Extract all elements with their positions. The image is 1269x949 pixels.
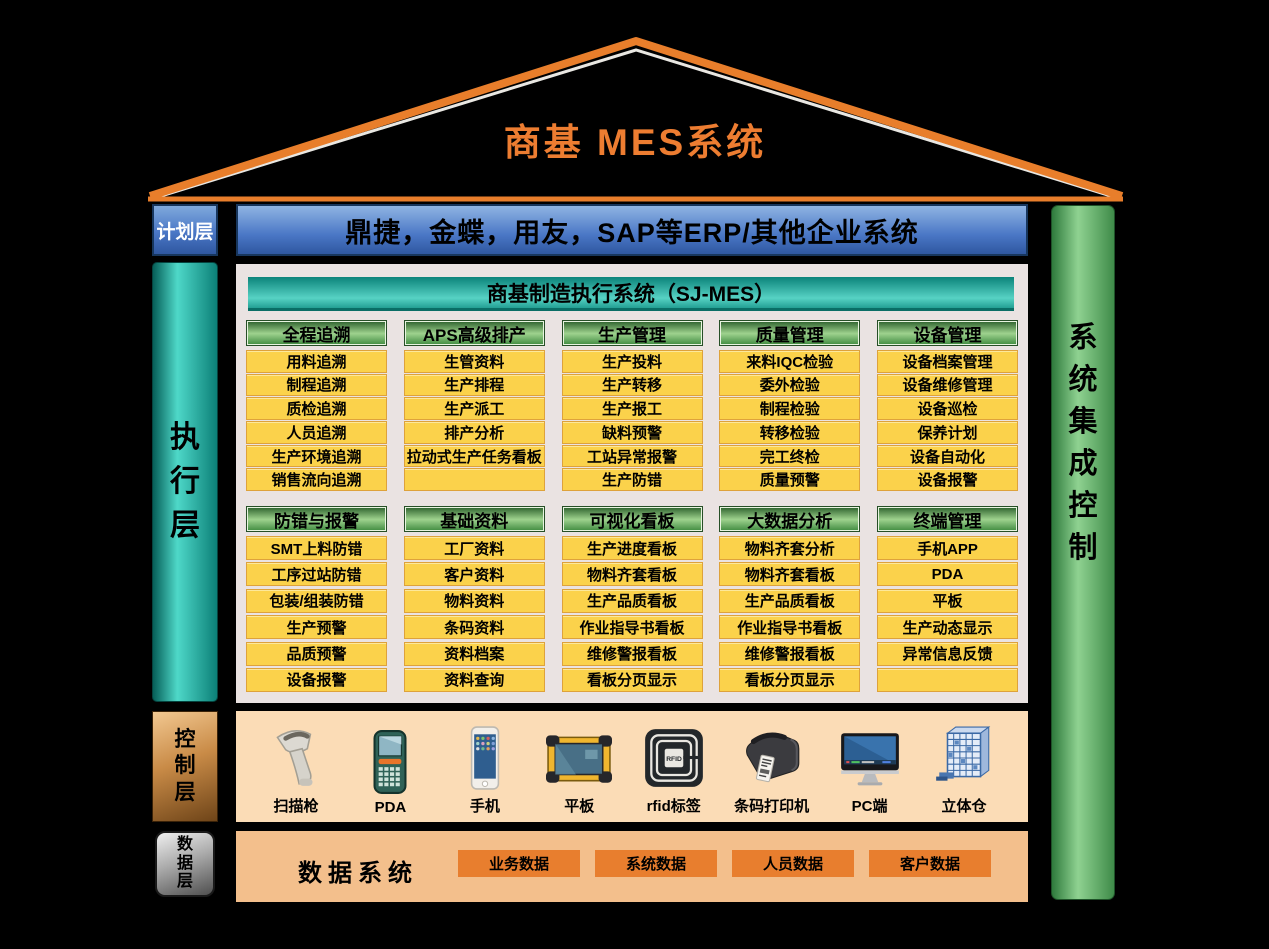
module-item: 资料档案 bbox=[404, 642, 545, 666]
device-label-printer: 条码打印机 bbox=[734, 722, 809, 816]
module-item: 生产转移 bbox=[562, 374, 703, 397]
device-warehouse: 立体仓 bbox=[930, 722, 998, 816]
warehouse-icon bbox=[930, 722, 998, 794]
sj-mes-panel-title: 商基制造执行系统（SJ-MES） bbox=[248, 277, 1014, 311]
module-item: 设备维修管理 bbox=[877, 374, 1018, 397]
module-item: 物料齐套看板 bbox=[562, 562, 703, 586]
data-item: 客户数据 bbox=[869, 850, 991, 877]
module-item: 作业指导书看板 bbox=[562, 615, 703, 639]
module-item: 工站异常报警 bbox=[562, 445, 703, 468]
device-label: 条码打印机 bbox=[734, 795, 809, 816]
device-label: PDA bbox=[375, 799, 407, 816]
module-item: 制程追溯 bbox=[246, 374, 387, 397]
data-item-list: 业务数据系统数据人员数据客户数据 bbox=[458, 850, 991, 877]
module-item: 生产预警 bbox=[246, 615, 387, 639]
module-item: 转移检验 bbox=[719, 421, 860, 444]
desktop-icon bbox=[836, 722, 904, 794]
module-group-2-2: 基础资料工厂资料客户资料物料资料条码资料资料档案资料查询 bbox=[404, 506, 545, 694]
module-group-2-4: 大数据分析物料齐套分析物料齐套看板生产品质看板作业指导书看板维修警报看板看板分页… bbox=[719, 506, 860, 694]
module-item: 设备报警 bbox=[246, 668, 387, 692]
module-item: 质量预警 bbox=[719, 468, 860, 491]
module-item: 设备自动化 bbox=[877, 445, 1018, 468]
module-item: 排产分析 bbox=[404, 421, 545, 444]
module-item: 拉动式生产任务看板 bbox=[404, 445, 545, 468]
group-header: 可视化看板 bbox=[562, 506, 703, 532]
device-rfid-tag: RFIDrfid标签 bbox=[640, 722, 708, 816]
module-item: 生产品质看板 bbox=[562, 589, 703, 613]
module-item: 设备报警 bbox=[877, 468, 1018, 491]
group-header: 基础资料 bbox=[404, 506, 545, 532]
device-label: 手机 bbox=[470, 795, 500, 816]
module-item-empty bbox=[877, 668, 1018, 692]
data-system-band: 数据系统 业务数据系统数据人员数据客户数据 bbox=[236, 831, 1028, 902]
layer-label-data: 数据层 bbox=[155, 831, 215, 897]
phone-icon bbox=[451, 722, 519, 794]
module-item: 设备巡检 bbox=[877, 397, 1018, 420]
module-item: 生产动态显示 bbox=[877, 615, 1018, 639]
group-header: 全程追溯 bbox=[246, 320, 387, 346]
rfid-tag-icon: RFID bbox=[640, 722, 708, 794]
module-item: 质检追溯 bbox=[246, 397, 387, 420]
module-item: 生产排程 bbox=[404, 374, 545, 397]
module-item: 异常信息反馈 bbox=[877, 642, 1018, 666]
module-group-1-5: 设备管理设备档案管理设备维修管理设备巡检保养计划设备自动化设备报警 bbox=[877, 320, 1018, 492]
module-item: 委外检验 bbox=[719, 374, 860, 397]
module-item: 工厂资料 bbox=[404, 536, 545, 560]
scanner-gun-icon bbox=[262, 722, 330, 794]
group-header: 防错与报警 bbox=[246, 506, 387, 532]
device-label: 立体仓 bbox=[941, 795, 986, 816]
module-group-row-1: 全程追溯用料追溯制程追溯质检追溯人员追溯生产环境追溯销售流向追溯APS高级排产生… bbox=[246, 320, 1018, 492]
module-item: 生产环境追溯 bbox=[246, 445, 387, 468]
module-item: PDA bbox=[877, 562, 1018, 586]
device-label: rfid标签 bbox=[647, 795, 701, 816]
roof-outline bbox=[0, 0, 1269, 210]
module-item: 制程检验 bbox=[719, 397, 860, 420]
data-system-title: 数据系统 bbox=[298, 853, 418, 888]
module-item: 设备档案管理 bbox=[877, 350, 1018, 373]
module-group-1-1: 全程追溯用料追溯制程追溯质检追溯人员追溯生产环境追溯销售流向追溯 bbox=[246, 320, 387, 492]
module-item: 工序过站防错 bbox=[246, 562, 387, 586]
module-item: 维修警报看板 bbox=[719, 642, 860, 666]
system-integration-bar: 系统集成控制 bbox=[1051, 205, 1115, 900]
device-scanner-gun: 扫描枪 bbox=[262, 722, 330, 816]
device-label: PC端 bbox=[852, 795, 888, 816]
device-label: 扫描枪 bbox=[273, 795, 318, 816]
device-label: 平板 bbox=[564, 795, 594, 816]
module-item: 包装/组装防错 bbox=[246, 589, 387, 613]
module-item: 品质预警 bbox=[246, 642, 387, 666]
tablet-icon bbox=[545, 722, 613, 794]
module-item: 手机APP bbox=[877, 536, 1018, 560]
data-item: 人员数据 bbox=[732, 850, 854, 877]
module-group-1-4: 质量管理来料IQC检验委外检验制程检验转移检验完工终检质量预警 bbox=[719, 320, 860, 492]
module-item: 生产报工 bbox=[562, 397, 703, 420]
data-item: 系统数据 bbox=[595, 850, 717, 877]
group-header: 设备管理 bbox=[877, 320, 1018, 346]
module-item: 保养计划 bbox=[877, 421, 1018, 444]
group-header: 大数据分析 bbox=[719, 506, 860, 532]
layer-label-execution: 执行层 bbox=[152, 262, 218, 702]
control-devices-band: 扫描枪PDA手机平板RFIDrfid标签条码打印机PC端立体仓 bbox=[236, 711, 1028, 822]
module-group-1-3: 生产管理生产投料生产转移生产报工缺料预警工站异常报警生产防错 bbox=[562, 320, 703, 492]
module-group-2-3: 可视化看板生产进度看板物料齐套看板生产品质看板作业指导书看板维修警报看板看板分页… bbox=[562, 506, 703, 694]
module-item: 生产防错 bbox=[562, 468, 703, 491]
module-item: 物料齐套分析 bbox=[719, 536, 860, 560]
pda-icon bbox=[356, 726, 424, 798]
erp-systems-bar: 鼎捷，金蝶，用友，SAP等ERP/其他企业系统 bbox=[236, 204, 1028, 256]
group-header: 生产管理 bbox=[562, 320, 703, 346]
label-printer-icon bbox=[738, 722, 806, 794]
module-group-2-1: 防错与报警SMT上料防错工序过站防错包装/组装防错生产预警品质预警设备报警 bbox=[246, 506, 387, 694]
module-item: 生管资料 bbox=[404, 350, 545, 373]
module-item: 销售流向追溯 bbox=[246, 468, 387, 491]
module-item: 来料IQC检验 bbox=[719, 350, 860, 373]
module-item: 人员追溯 bbox=[246, 421, 387, 444]
layer-label-control: 控制层 bbox=[152, 711, 218, 822]
device-desktop: PC端 bbox=[836, 722, 904, 816]
diagram-title: 商基 MES系统 bbox=[385, 112, 885, 166]
device-pda: PDA bbox=[356, 726, 424, 816]
group-header: APS高级排产 bbox=[404, 320, 545, 346]
module-item: SMT上料防错 bbox=[246, 536, 387, 560]
svg-text:RFID: RFID bbox=[666, 756, 682, 763]
device-phone: 手机 bbox=[451, 722, 519, 816]
module-item: 条码资料 bbox=[404, 615, 545, 639]
module-group-1-2: APS高级排产生管资料生产排程生产派工排产分析拉动式生产任务看板 bbox=[404, 320, 545, 492]
device-tablet: 平板 bbox=[545, 722, 613, 816]
module-item: 物料资料 bbox=[404, 589, 545, 613]
module-item: 作业指导书看板 bbox=[719, 615, 860, 639]
module-item: 维修警报看板 bbox=[562, 642, 703, 666]
module-item: 生产派工 bbox=[404, 397, 545, 420]
module-item: 看板分页显示 bbox=[562, 668, 703, 692]
module-item: 物料齐套看板 bbox=[719, 562, 860, 586]
group-header: 终端管理 bbox=[877, 506, 1018, 532]
module-item: 平板 bbox=[877, 589, 1018, 613]
sj-mes-panel: 商基制造执行系统（SJ-MES） 全程追溯用料追溯制程追溯质检追溯人员追溯生产环… bbox=[236, 264, 1028, 703]
module-item: 生产品质看板 bbox=[719, 589, 860, 613]
group-header: 质量管理 bbox=[719, 320, 860, 346]
module-item: 资料查询 bbox=[404, 668, 545, 692]
mes-architecture-diagram: 商基 MES系统 计划层 鼎捷，金蝶，用友，SAP等ERP/其他企业系统 执行层… bbox=[0, 0, 1269, 949]
layer-label-planning: 计划层 bbox=[152, 204, 218, 256]
module-item: 完工终检 bbox=[719, 445, 860, 468]
module-item: 用料追溯 bbox=[246, 350, 387, 373]
module-item-empty bbox=[404, 468, 545, 491]
data-item: 业务数据 bbox=[458, 850, 580, 877]
module-group-row-2: 防错与报警SMT上料防错工序过站防错包装/组装防错生产预警品质预警设备报警基础资… bbox=[246, 506, 1018, 694]
module-item: 生产投料 bbox=[562, 350, 703, 373]
module-item: 客户资料 bbox=[404, 562, 545, 586]
module-item: 生产进度看板 bbox=[562, 536, 703, 560]
module-item: 缺料预警 bbox=[562, 421, 703, 444]
module-group-2-5: 终端管理手机APPPDA平板生产动态显示异常信息反馈 bbox=[877, 506, 1018, 694]
module-item: 看板分页显示 bbox=[719, 668, 860, 692]
